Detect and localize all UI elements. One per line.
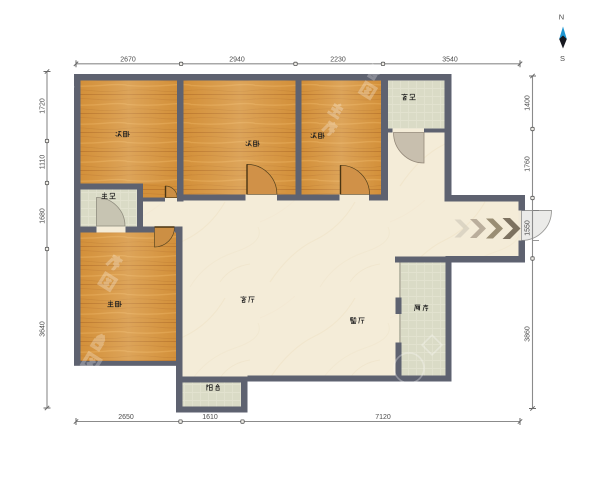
svg-text:3640: 3640	[40, 321, 47, 337]
svg-text:1610: 1610	[202, 414, 218, 421]
svg-text:2230: 2230	[330, 57, 346, 64]
svg-text:2670: 2670	[120, 57, 136, 64]
svg-text:2650: 2650	[118, 414, 134, 421]
svg-text:1680: 1680	[40, 208, 47, 224]
svg-text:S: S	[560, 54, 565, 63]
svg-text:N: N	[559, 13, 564, 22]
svg-text:1400: 1400	[525, 95, 532, 111]
svg-text:1760: 1760	[525, 156, 532, 172]
svg-text:2940: 2940	[229, 57, 245, 64]
svg-text:1720: 1720	[40, 98, 47, 114]
svg-text:7120: 7120	[375, 414, 391, 421]
svg-text:1110: 1110	[40, 155, 47, 170]
svg-text:3540: 3540	[442, 57, 458, 64]
svg-text:3860: 3860	[525, 326, 532, 342]
svg-text:1550: 1550	[525, 220, 532, 236]
